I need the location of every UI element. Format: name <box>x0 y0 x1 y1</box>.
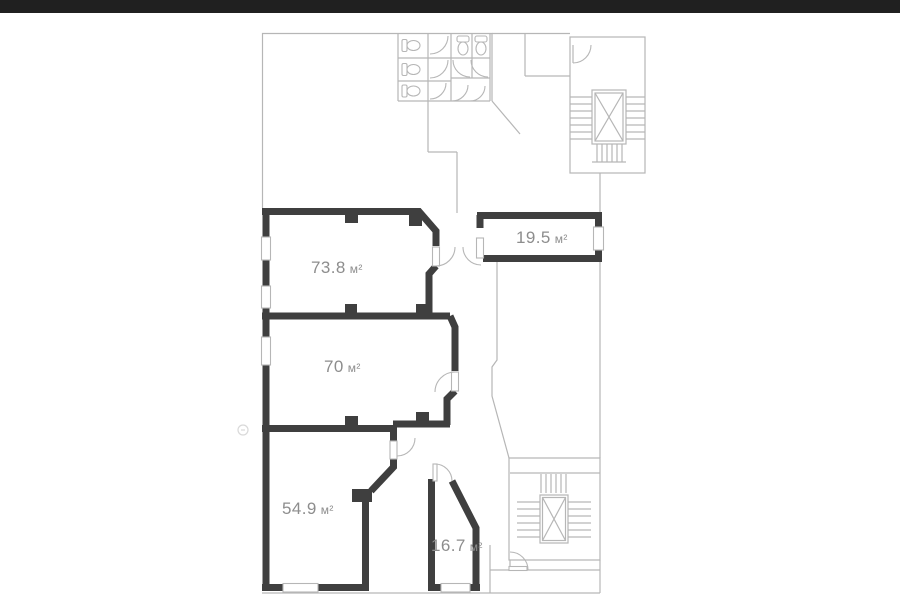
door-leaf <box>433 247 440 266</box>
pillar <box>409 211 422 226</box>
room-labels: 73.8м² 19.5м² 70м² 54.9м² 16.7м² <box>282 228 568 555</box>
door-leaf <box>509 567 527 571</box>
window <box>262 337 271 365</box>
door-arc <box>397 438 415 456</box>
doors <box>390 238 528 571</box>
stairwell-bottom <box>509 458 600 560</box>
watermark-icon <box>238 425 248 435</box>
window <box>283 584 318 593</box>
pillar <box>345 304 357 316</box>
elevator-icon <box>592 90 626 144</box>
window <box>262 286 271 308</box>
room-label-73-8: 73.8м² <box>311 258 363 277</box>
pillar <box>416 304 428 316</box>
pillar <box>416 412 429 424</box>
door-leaf <box>477 238 484 258</box>
room-label-54-9: 54.9м² <box>282 499 334 518</box>
pillar <box>345 416 358 428</box>
toilet-icon <box>402 40 420 98</box>
pillar <box>345 211 358 223</box>
door-leaf <box>452 372 459 391</box>
window <box>594 227 604 250</box>
floor-plan-page: 73.8м² 19.5м² 70м² 54.9м² 16.7м² <box>0 0 900 604</box>
room-label-70: 70м² <box>324 357 361 376</box>
window <box>441 584 470 593</box>
floor-plan-drawing: 73.8м² 19.5м² 70м² 54.9м² 16.7м² <box>0 0 900 604</box>
pillar <box>352 489 372 502</box>
door-leaf <box>433 464 437 481</box>
top-bar <box>0 0 900 13</box>
room-label-19-5: 19.5м² <box>516 228 568 247</box>
stairwell-top <box>570 37 645 173</box>
stair-door-arc <box>573 45 591 63</box>
door-leaf <box>390 441 397 459</box>
elevator-icon <box>540 495 568 543</box>
window <box>262 237 271 260</box>
wc-block <box>398 34 490 102</box>
